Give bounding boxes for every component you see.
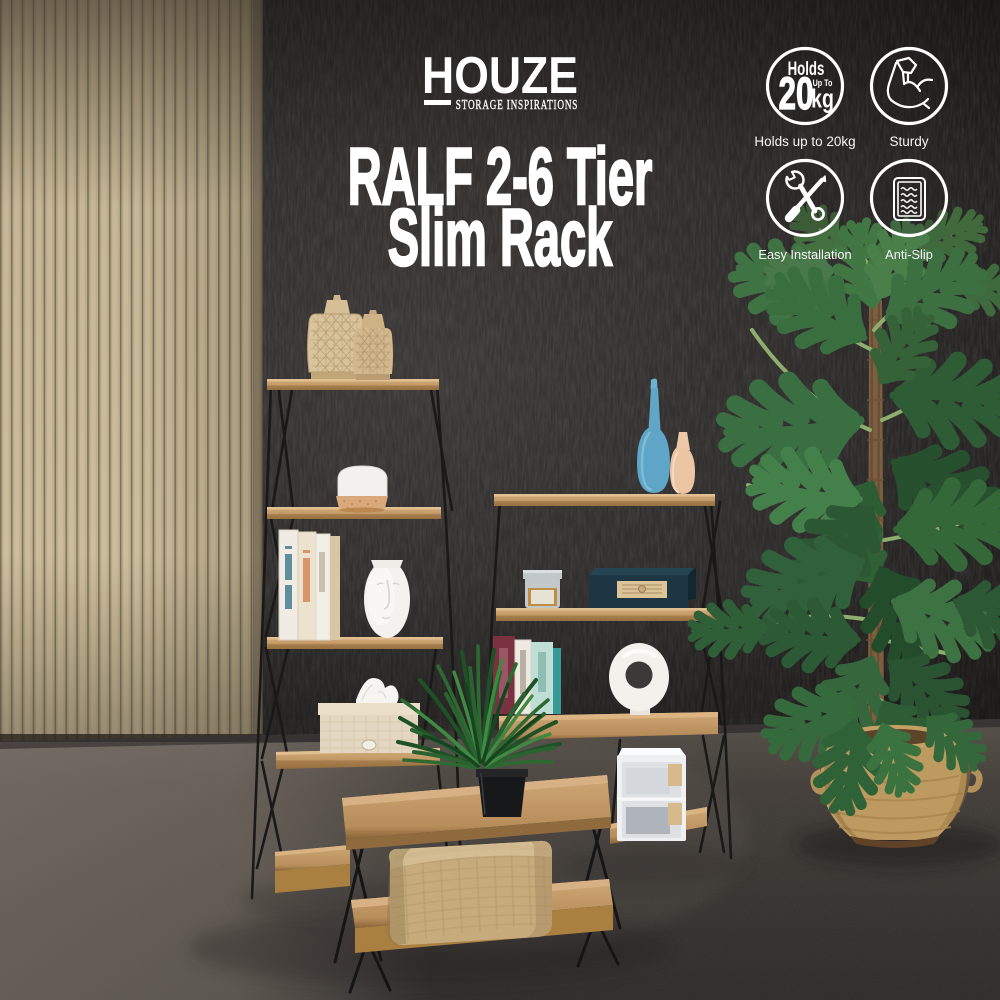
svg-text:Slim Rack: Slim Rack	[388, 193, 613, 284]
svg-text:Sturdy: Sturdy	[889, 134, 928, 149]
svg-text:20: 20	[778, 70, 813, 120]
svg-text:Anti-Slip: Anti-Slip	[885, 247, 933, 262]
svg-text:HOUZE: HOUZE	[422, 47, 578, 105]
svg-text:STORAGE INSPIRATIONS: STORAGE INSPIRATIONS	[456, 98, 578, 112]
svg-text:Easy Installation: Easy Installation	[758, 247, 851, 262]
svg-text:Holds up to 20kg: Holds up to 20kg	[754, 134, 855, 149]
svg-text:kg: kg	[811, 84, 834, 113]
